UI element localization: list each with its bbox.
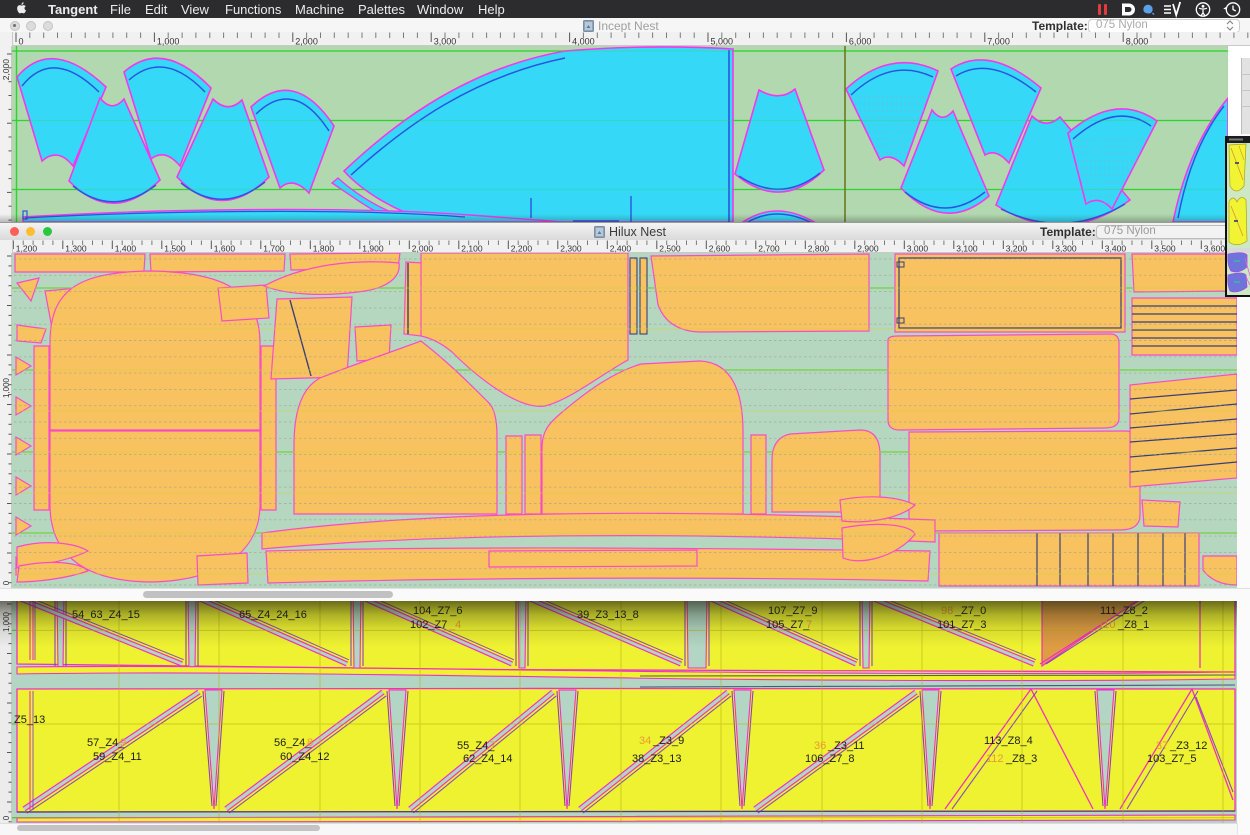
svg-text:7: 7 [490,740,496,752]
svg-text:111_Z8_2: 111_Z8_2 [1100,605,1148,617]
svg-text:1,600: 1,600 [214,244,236,254]
svg-text:_Z3_9: _Z3_9 [652,735,684,747]
svg-text:39_Z3_13_8: 39_Z3_13_8 [577,609,639,621]
svg-text:62_Z4_14: 62_Z4_14 [463,753,513,765]
svg-text:2,800: 2,800 [808,244,830,254]
svg-text:0: 0 [2,580,11,585]
svg-text:_Z8_1: _Z8_1 [1117,619,1149,631]
svg-text:3,400: 3,400 [1105,244,1127,254]
svg-text:2,400: 2,400 [610,244,632,254]
svg-text:8: 8 [307,737,313,749]
svg-text:_4: _4 [448,619,461,631]
svg-text:103_Z7_5: 103_Z7_5 [1147,753,1197,765]
svg-text:98: 98 [941,605,953,617]
svg-text:1,200: 1,200 [16,244,38,254]
svg-text:1,800: 1,800 [313,244,335,254]
svg-text:113_Z8_4: 113_Z8_4 [984,735,1033,747]
svg-text:2,100: 2,100 [461,244,483,254]
svg-text:105_Z7_: 105_Z7_ [766,619,810,631]
svg-text:9: 9 [120,737,126,749]
svg-text:1,500: 1,500 [164,244,186,254]
svg-text:_Z7_0: _Z7_0 [954,605,986,617]
svg-text:101_Z7_3: 101_Z7_3 [937,619,987,631]
svg-text:1,900: 1,900 [362,244,384,254]
svg-text:_Z8_3: _Z8_3 [1005,753,1037,765]
svg-text:_Z3_11: _Z3_11 [827,740,865,752]
svg-text:104_Z7_6: 104_Z7_6 [413,605,463,617]
svg-text:3,000: 3,000 [907,244,929,254]
svg-text:65_Z4_24_16: 65_Z4_24_16 [239,609,307,621]
svg-text:36: 36 [814,740,826,752]
svg-text:2,500: 2,500 [659,244,681,254]
svg-text:37: 37 [1156,740,1168,752]
svg-text:1,000: 1,000 [2,611,11,632]
svg-text:2,200: 2,200 [511,244,533,254]
svg-text:2,000: 2,000 [1,59,11,81]
svg-text:1,000: 1,000 [2,377,11,398]
svg-text:2,000: 2,000 [412,244,434,254]
svg-text:34: 34 [639,735,651,747]
svg-text:1,300: 1,300 [65,244,87,254]
svg-text:1,700: 1,700 [263,244,285,254]
svg-text:1,400: 1,400 [115,244,137,254]
svg-text:2,900: 2,900 [857,244,879,254]
svg-text:110: 110 [1098,619,1116,631]
svg-text:60_Z4_12: 60_Z4_12 [280,751,330,763]
svg-text:3,500: 3,500 [1154,244,1176,254]
svg-text:3,600: 3,600 [1204,244,1226,254]
svg-text:_Z3_12: _Z3_12 [1169,740,1207,752]
svg-text:3,100: 3,100 [956,244,978,254]
svg-text:2,700: 2,700 [758,244,780,254]
svg-text:3,200: 3,200 [1006,244,1028,254]
svg-text:2,600: 2,600 [709,244,731,254]
svg-text:Z5_13: Z5_13 [14,714,45,726]
svg-text:0: 0 [2,815,11,820]
svg-text:3,300: 3,300 [1055,244,1077,254]
svg-text:112: 112 [986,753,1004,765]
svg-text:54_63_Z4_15: 54_63_Z4_15 [72,609,140,621]
svg-text:102_Z7: 102_Z7 [410,619,447,631]
svg-text:106_Z7_8: 106_Z7_8 [805,753,855,765]
svg-text:38_Z3_13: 38_Z3_13 [632,753,682,765]
svg-text:7: 7 [806,619,812,631]
svg-text:59_Z4_11: 59_Z4_11 [93,751,142,763]
svg-text:107_Z7_9: 107_Z7_9 [768,605,818,617]
svg-text:2,300: 2,300 [560,244,582,254]
svg-text:0: 0 [19,37,24,47]
